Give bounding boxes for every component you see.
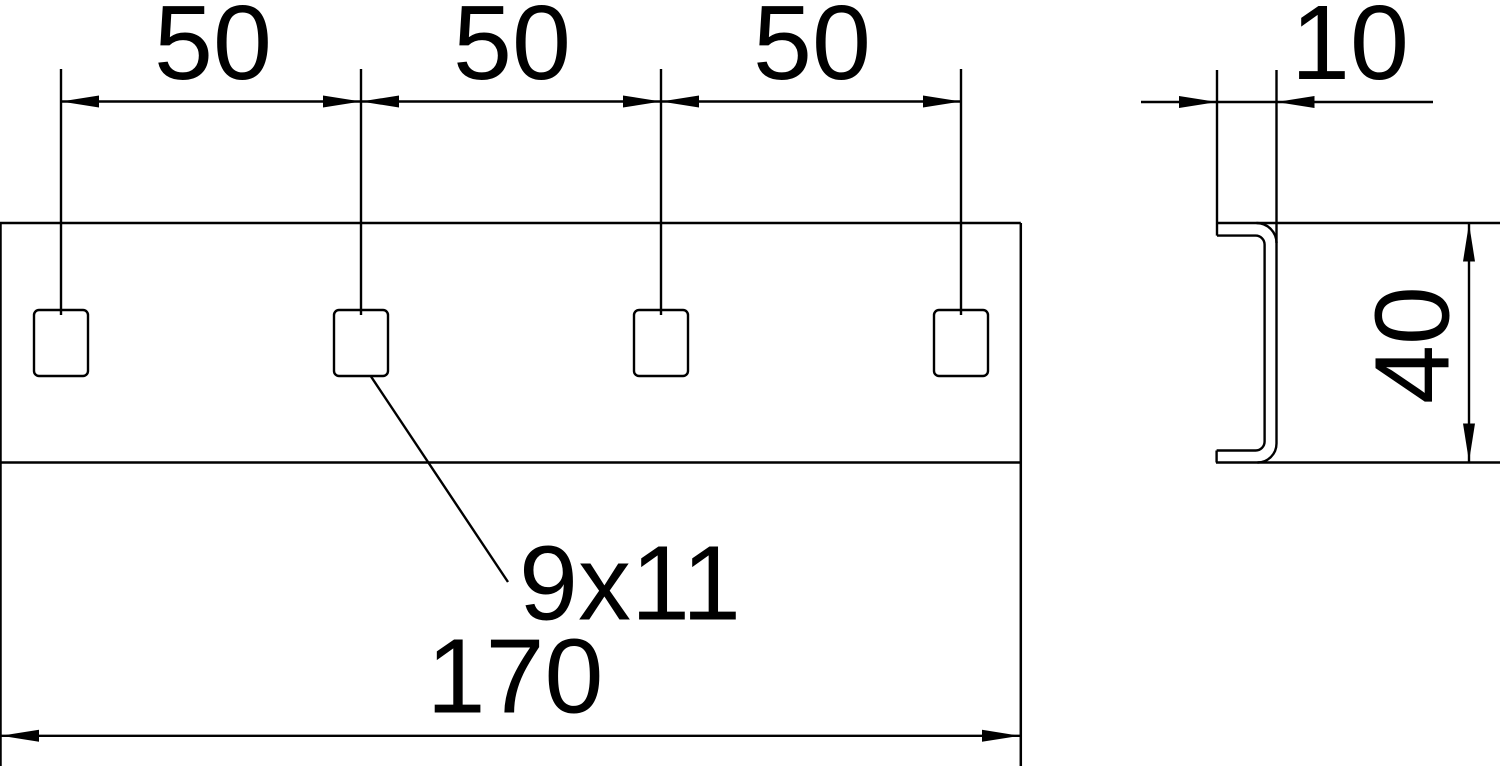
- svg-text:10: 10: [1291, 0, 1409, 102]
- svg-text:50: 50: [453, 0, 571, 102]
- svg-text:50: 50: [753, 0, 871, 102]
- svg-text:40: 40: [1354, 286, 1472, 404]
- svg-text:50: 50: [154, 0, 272, 102]
- svg-text:170: 170: [427, 618, 604, 736]
